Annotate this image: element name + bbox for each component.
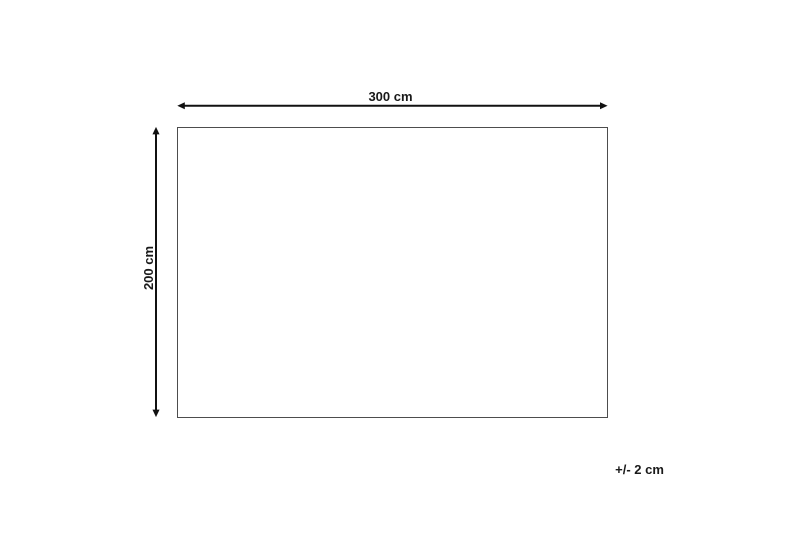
svg-text:200 cm: 200 cm — [141, 246, 156, 290]
svg-text:300 cm: 300 cm — [368, 89, 412, 104]
svg-text:+/- 2 cm: +/- 2 cm — [615, 462, 664, 477]
